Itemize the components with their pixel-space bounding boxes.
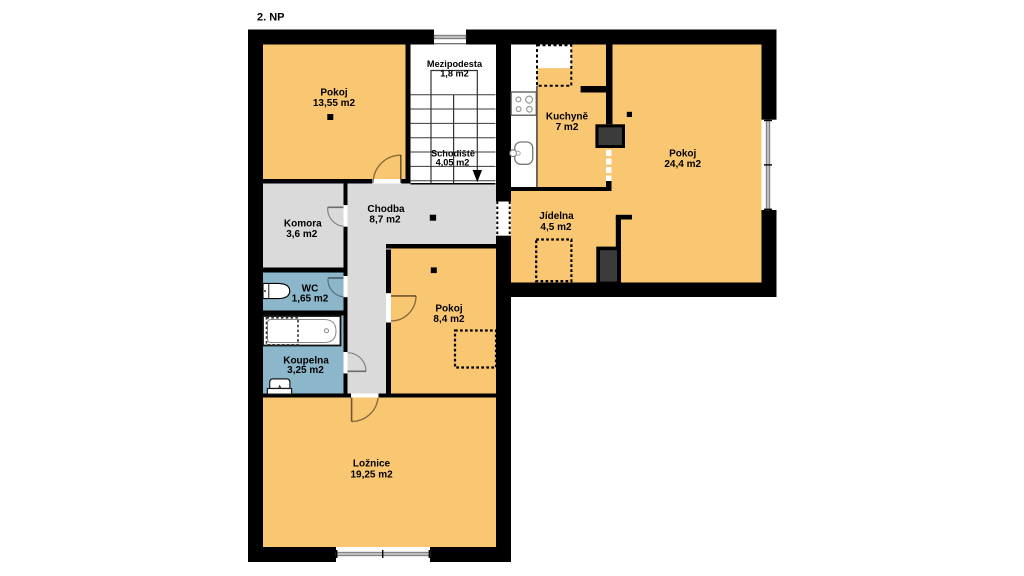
svg-text:2. NP: 2. NP bbox=[257, 12, 285, 24]
svg-text:4,5 m2: 4,5 m2 bbox=[540, 222, 572, 233]
svg-text:Pokoj: Pokoj bbox=[669, 149, 696, 160]
svg-text:Pokoj: Pokoj bbox=[435, 304, 462, 315]
svg-text:Mezipodesta: Mezipodesta bbox=[427, 59, 483, 69]
svg-text:4,05 m2: 4,05 m2 bbox=[436, 158, 470, 168]
svg-text:3,25 m2: 3,25 m2 bbox=[287, 365, 324, 376]
svg-text:8,4 m2: 8,4 m2 bbox=[433, 314, 465, 325]
svg-text:13,55 m2: 13,55 m2 bbox=[313, 98, 356, 109]
svg-text:Komora: Komora bbox=[284, 219, 322, 230]
svg-text:Chodba: Chodba bbox=[367, 204, 405, 215]
svg-text:3,6 m2: 3,6 m2 bbox=[286, 229, 318, 240]
svg-text:1,65 m2: 1,65 m2 bbox=[292, 294, 329, 305]
svg-text:7 m2: 7 m2 bbox=[556, 122, 579, 133]
svg-text:19,25 m2: 19,25 m2 bbox=[350, 469, 393, 480]
svg-text:Ložnice: Ložnice bbox=[353, 459, 391, 470]
svg-text:24,4 m2: 24,4 m2 bbox=[664, 159, 701, 170]
svg-text:Pokoj: Pokoj bbox=[320, 87, 347, 98]
svg-text:1,8 m2: 1,8 m2 bbox=[440, 69, 469, 79]
svg-text:Jídelna: Jídelna bbox=[539, 211, 574, 222]
svg-text:8,7 m2: 8,7 m2 bbox=[369, 215, 401, 226]
